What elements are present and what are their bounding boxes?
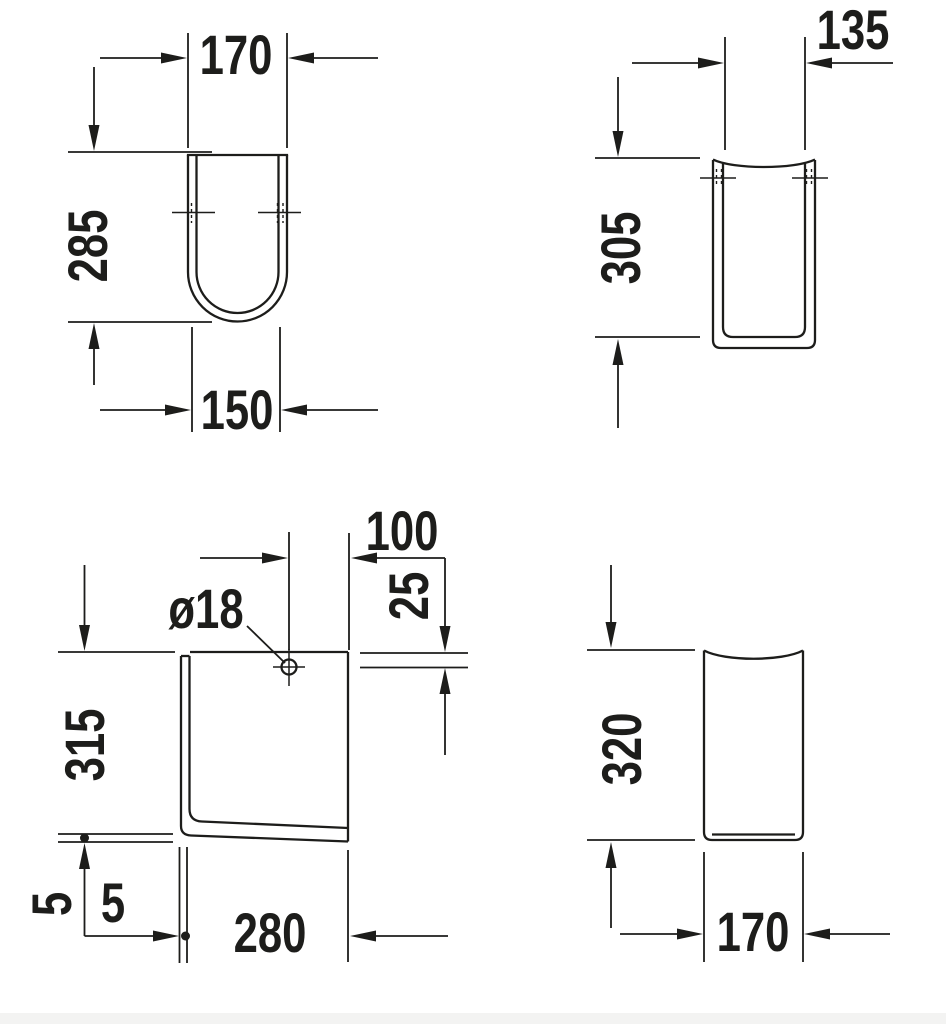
section-outline [181,652,348,842]
dim-gap-vertical-5: 5 [21,834,173,937]
dim-label-gap-vertical: 5 [21,892,83,916]
inner-contour [723,164,805,338]
arrowhead-up [440,668,451,694]
dim-height-320: 320 [587,565,695,928]
arrowhead-down [79,625,90,651]
arrowhead-left [288,53,314,64]
arrowhead-down [440,626,451,652]
dim-label-height: 305 [590,212,652,285]
u-profile-outline [187,155,288,322]
arrowhead-left [281,405,307,416]
arrowhead-right [165,405,191,416]
dim-label-width-bottom: 150 [201,379,274,441]
view-rear-top-right: 135 305 [590,0,893,428]
arrowhead-right [161,53,187,64]
dimension-origin-dot [181,932,190,941]
dim-hole-depth-25: 25 [360,558,468,755]
arrowhead-up [89,323,100,349]
arrowhead-up [613,339,624,365]
arrowhead-right [262,553,288,564]
dim-height-315: 315 [54,565,175,781]
dim-width-bottom-150: 150 [100,327,378,441]
dim-width-top-170: 170 [100,24,378,148]
leader-line [247,626,285,663]
dim-label-gap-horizontal: 5 [101,872,125,934]
arrowhead-down [606,622,617,648]
pedestal-outline [713,160,815,349]
dim-width-top-135: 135 [632,0,893,150]
dim-label-height: 315 [54,709,116,782]
arrowhead-left [804,929,830,940]
top-saddle-curve [713,160,815,168]
mounting-hole-marks [700,169,828,186]
page-bottom-shade [0,1013,946,1024]
arrowhead-down [89,125,100,151]
arrowhead-up [79,843,90,869]
outer-contour [704,651,803,841]
dim-label-hole-diameter: ø18 [168,578,243,640]
view-side-section-bottom-left: ø18 100 25 315 [21,500,468,964]
dim-label-width-top: 135 [817,0,890,61]
technical-drawing-canvas: 170 285 150 [0,0,946,1024]
outer-contour [188,155,287,322]
dim-label-hole-depth: 25 [378,572,440,621]
dim-label-width-top: 170 [200,24,273,86]
dim-label-height: 320 [591,713,653,786]
mounting-hole-marks [172,203,301,223]
arrowhead-left [350,931,376,942]
dim-label-height: 285 [57,210,119,283]
dimension-origin-dot [80,834,89,843]
dimension-drawing-svg: 170 285 150 [0,0,946,1024]
dim-gap-horizontal-5: 5 [85,847,191,963]
outer-contour [713,160,815,348]
view-front-bottom-right: 320 170 [587,565,890,963]
dim-height-305: 305 [590,77,700,428]
arrowhead-right [698,58,724,69]
dim-label-hole-offset: 100 [366,500,439,562]
arrowhead-right [153,931,179,942]
outer-wall-and-base [181,656,348,842]
arrowhead-down [613,131,624,157]
dim-depth-280: 280 [234,850,448,964]
top-saddle-curve [704,651,803,659]
arrowhead-right [677,929,703,940]
dim-label-depth: 280 [234,902,307,964]
inner-contour [197,155,279,313]
inner-wall-and-base [190,656,349,828]
dim-label-width: 170 [717,901,790,963]
arrowhead-up [606,842,617,868]
pedestal-outline [704,651,803,841]
view-plan-top-left: 170 285 150 [57,24,378,441]
dim-width-170: 170 [620,852,890,963]
